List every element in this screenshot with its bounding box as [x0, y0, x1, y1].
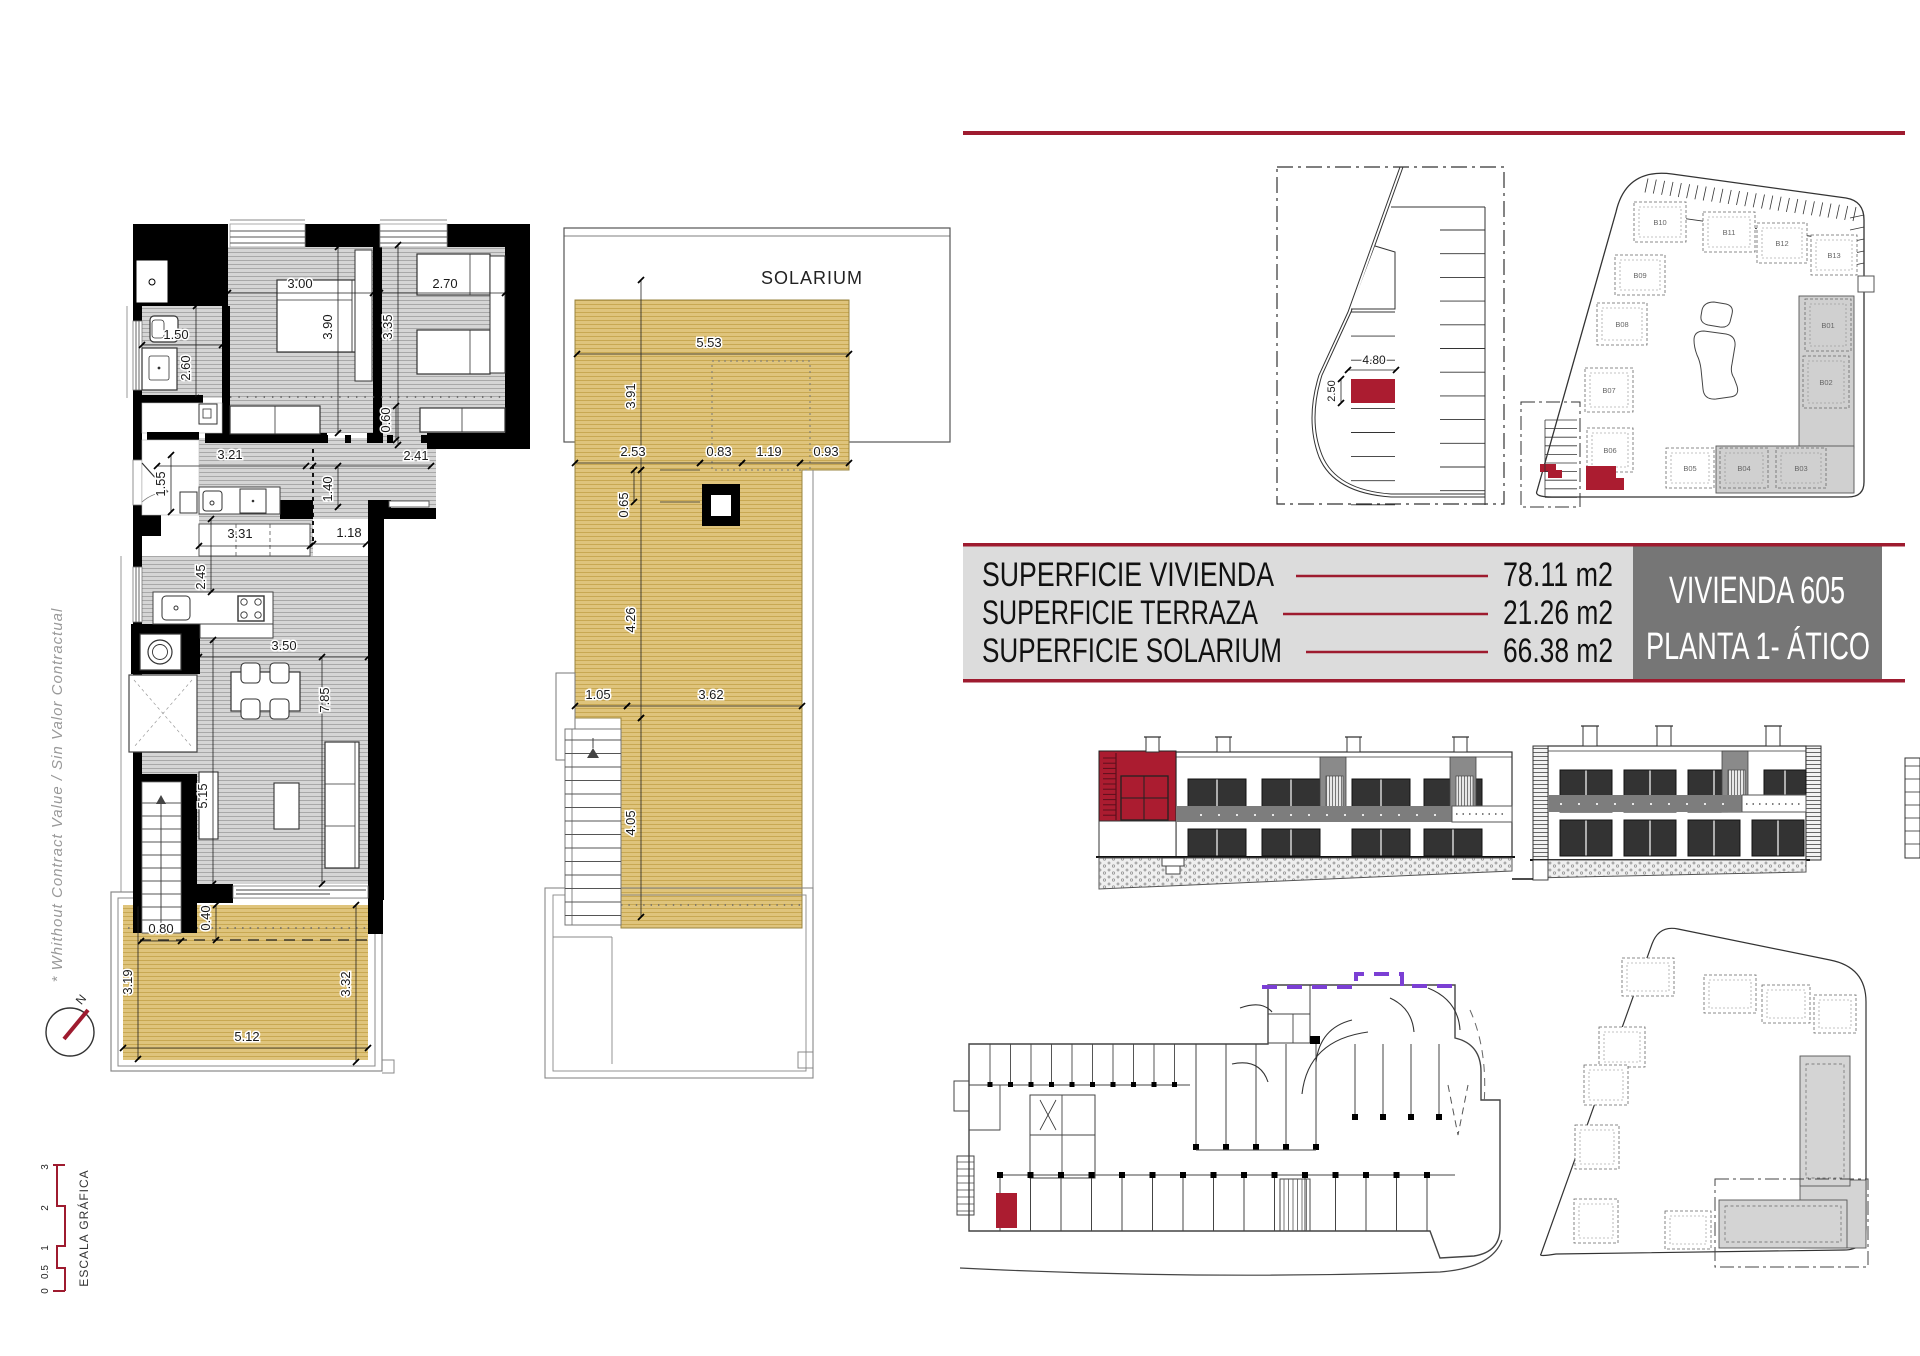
svg-text:3.21: 3.21 [217, 447, 242, 462]
svg-text:2.53: 2.53 [620, 444, 645, 459]
svg-text:3: 3 [40, 1164, 51, 1170]
svg-text:1.40: 1.40 [320, 476, 335, 501]
svg-text:66.38 m2: 66.38 m2 [1503, 632, 1613, 670]
svg-text:VIVIENDA 605: VIVIENDA 605 [1669, 570, 1845, 612]
svg-text:B08: B08 [1615, 320, 1628, 329]
svg-text:1.55: 1.55 [153, 471, 168, 496]
svg-text:B13: B13 [1827, 251, 1840, 260]
svg-text:2.50: 2.50 [1326, 380, 1338, 401]
svg-text:3.19: 3.19 [120, 969, 135, 994]
svg-text:2.70: 2.70 [432, 276, 457, 291]
svg-text:3.50: 3.50 [271, 638, 296, 653]
svg-text:* Whithout Contract Value /: * Whithout Contract Value / Sin Valor Co… [49, 608, 66, 983]
svg-text:B07: B07 [1602, 386, 1615, 395]
svg-text:3.90: 3.90 [320, 314, 335, 339]
svg-text:B12: B12 [1775, 239, 1788, 248]
svg-text:PLANTA 1- ÁTICO: PLANTA 1- ÁTICO [1646, 625, 1870, 668]
svg-text:3.91: 3.91 [623, 383, 638, 408]
svg-text:4.80: 4.80 [1362, 353, 1386, 367]
svg-text:3.00: 3.00 [287, 276, 312, 291]
svg-text:0.65: 0.65 [616, 492, 631, 517]
svg-text:7.85: 7.85 [317, 687, 332, 712]
svg-text:2: 2 [40, 1205, 51, 1211]
svg-text:B04: B04 [1737, 464, 1750, 473]
svg-text:B06: B06 [1603, 446, 1616, 455]
svg-text:2.60: 2.60 [178, 355, 193, 380]
svg-text:B10: B10 [1653, 218, 1666, 227]
svg-text:0.80: 0.80 [148, 921, 173, 936]
svg-text:0.83: 0.83 [706, 444, 731, 459]
svg-text:0.40: 0.40 [198, 905, 213, 930]
svg-text:5.53: 5.53 [696, 335, 721, 350]
svg-text:SOLARIUM: SOLARIUM [761, 268, 863, 288]
svg-text:4.26: 4.26 [623, 607, 638, 632]
svg-text:SUPERFICIE TERRAZA: SUPERFICIE TERRAZA [982, 594, 1258, 632]
svg-text:B11: B11 [1723, 228, 1736, 237]
svg-text:B01: B01 [1821, 321, 1834, 330]
svg-text:4.05: 4.05 [623, 810, 638, 835]
svg-text:3.31: 3.31 [227, 526, 252, 541]
svg-text:2.45: 2.45 [193, 564, 208, 589]
svg-text:0.60: 0.60 [378, 407, 393, 432]
svg-text:1: 1 [40, 1245, 51, 1251]
svg-text:B02: B02 [1819, 378, 1832, 387]
svg-text:21.26 m2: 21.26 m2 [1503, 594, 1613, 632]
svg-text:3.62: 3.62 [698, 687, 723, 702]
svg-text:0.5: 0.5 [40, 1265, 51, 1279]
svg-text:1.05: 1.05 [585, 687, 610, 702]
svg-text:5.12: 5.12 [234, 1029, 259, 1044]
svg-text:1.19: 1.19 [756, 444, 781, 459]
svg-text:0: 0 [40, 1288, 51, 1294]
svg-text:1.18: 1.18 [336, 525, 361, 540]
svg-text:5.15: 5.15 [195, 783, 210, 808]
svg-text:B05: B05 [1683, 464, 1696, 473]
svg-text:2.41: 2.41 [403, 448, 428, 463]
svg-text:B09: B09 [1633, 271, 1646, 280]
svg-text:ESCALA GRÁFICA: ESCALA GRÁFICA [76, 1169, 91, 1286]
svg-text:78.11 m2: 78.11 m2 [1503, 556, 1613, 594]
svg-text:SUPERFICIE VIVIENDA: SUPERFICIE VIVIENDA [982, 556, 1274, 594]
svg-text:B03: B03 [1794, 464, 1807, 473]
svg-text:3.32: 3.32 [338, 971, 353, 996]
svg-text:SUPERFICIE SOLARIUM: SUPERFICIE SOLARIUM [982, 632, 1282, 670]
svg-text:1.50: 1.50 [163, 327, 188, 342]
svg-text:0.93: 0.93 [813, 444, 838, 459]
svg-text:3.35: 3.35 [380, 314, 395, 339]
